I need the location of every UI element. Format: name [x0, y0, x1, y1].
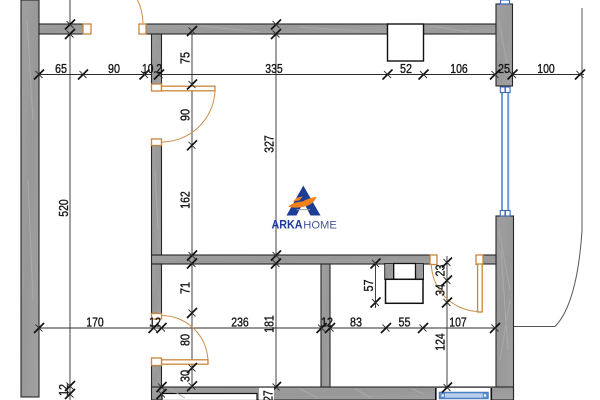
svg-text:30: 30 — [178, 370, 193, 382]
svg-text:124: 124 — [433, 333, 448, 351]
svg-text:83: 83 — [350, 315, 362, 330]
svg-text:23: 23 — [433, 265, 448, 277]
svg-text:HOME: HOME — [303, 219, 337, 231]
svg-text:327: 327 — [262, 135, 277, 153]
svg-text:ARKA: ARKA — [272, 219, 303, 231]
svg-text:335: 335 — [265, 61, 283, 76]
svg-text:106: 106 — [450, 61, 468, 76]
svg-text:100: 100 — [537, 61, 555, 76]
svg-text:65: 65 — [55, 61, 67, 76]
svg-text:12: 12 — [56, 384, 71, 396]
svg-text:75: 75 — [178, 52, 193, 64]
svg-text:107: 107 — [449, 315, 467, 330]
svg-text:181: 181 — [262, 315, 277, 333]
svg-text:55: 55 — [399, 315, 411, 330]
svg-text:520: 520 — [56, 199, 71, 217]
svg-text:25: 25 — [498, 61, 510, 76]
svg-text:90: 90 — [108, 61, 120, 76]
svg-text:71: 71 — [178, 282, 193, 294]
svg-text:57: 57 — [361, 280, 376, 292]
svg-text:80: 80 — [178, 334, 193, 346]
svg-text:170: 170 — [86, 315, 104, 330]
svg-text:236: 236 — [231, 315, 249, 330]
svg-text:12: 12 — [321, 315, 333, 330]
svg-text:12: 12 — [149, 315, 161, 330]
svg-text:34: 34 — [433, 284, 448, 296]
svg-text:52: 52 — [400, 61, 412, 76]
svg-text:162: 162 — [178, 191, 193, 209]
svg-text:10.2: 10.2 — [142, 61, 162, 76]
svg-text:90: 90 — [178, 109, 193, 121]
svg-text:127: 127 — [261, 390, 276, 400]
